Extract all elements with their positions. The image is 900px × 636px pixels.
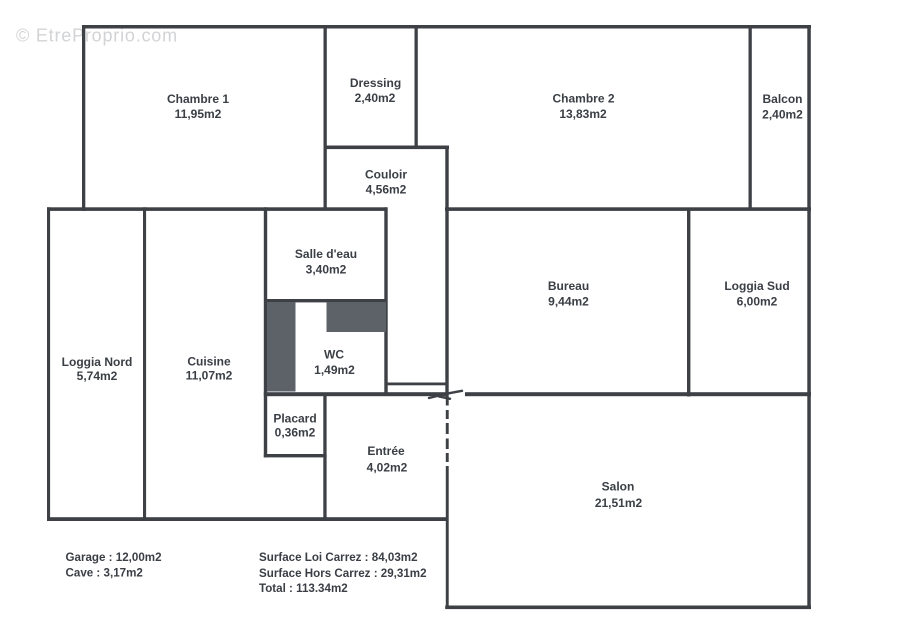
svg-text:Salon: Salon: [602, 480, 635, 494]
svg-text:Entrée: Entrée: [367, 444, 405, 458]
svg-text:2,40m2: 2,40m2: [355, 91, 396, 105]
svg-text:Balcon: Balcon: [762, 92, 802, 106]
svg-text:13,83m2: 13,83m2: [559, 107, 607, 121]
svg-text:Loggia Nord: Loggia Nord: [62, 355, 133, 369]
svg-text:11,95m2: 11,95m2: [175, 107, 222, 121]
svg-text:0,36m2: 0,36m2: [275, 426, 316, 440]
svg-text:Surface Loi Carrez : 84,03m2: Surface Loi Carrez : 84,03m2: [259, 551, 418, 564]
svg-text:Cave : 3,17m2: Cave : 3,17m2: [66, 567, 143, 580]
svg-text:3,40m2: 3,40m2: [306, 263, 347, 277]
svg-text:Chambre 2: Chambre 2: [552, 92, 614, 106]
svg-text:Surface Hors Carrez : 29,31m2: Surface Hors Carrez : 29,31m2: [259, 567, 427, 580]
svg-text:5,74m2: 5,74m2: [77, 369, 118, 383]
svg-text:Couloir: Couloir: [365, 168, 407, 182]
svg-text:11,07m2: 11,07m2: [186, 369, 233, 383]
svg-text:21,51m2: 21,51m2: [595, 496, 643, 510]
svg-text:Dressing: Dressing: [350, 76, 401, 90]
svg-text:Chambre 1: Chambre 1: [167, 92, 229, 106]
svg-text:Placard: Placard: [273, 412, 316, 426]
svg-text:Bureau: Bureau: [548, 279, 589, 293]
svg-text:2,40m2: 2,40m2: [762, 108, 803, 122]
svg-text:WC: WC: [324, 348, 344, 362]
svg-text:4,02m2: 4,02m2: [367, 461, 408, 475]
svg-text:Total : 113.34m2: Total : 113.34m2: [259, 582, 348, 595]
svg-text:1,49m2: 1,49m2: [314, 363, 355, 377]
svg-text:9,44m2: 9,44m2: [548, 295, 589, 309]
svg-text:4,56m2: 4,56m2: [366, 183, 407, 197]
svg-text:Cuisine: Cuisine: [187, 355, 231, 369]
svg-text:Loggia Sud: Loggia Sud: [724, 279, 789, 293]
svg-text:Garage : 12,00m2: Garage : 12,00m2: [66, 551, 162, 564]
svg-text:Salle d'eau: Salle d'eau: [295, 247, 357, 261]
svg-text:6,00m2: 6,00m2: [737, 295, 778, 309]
